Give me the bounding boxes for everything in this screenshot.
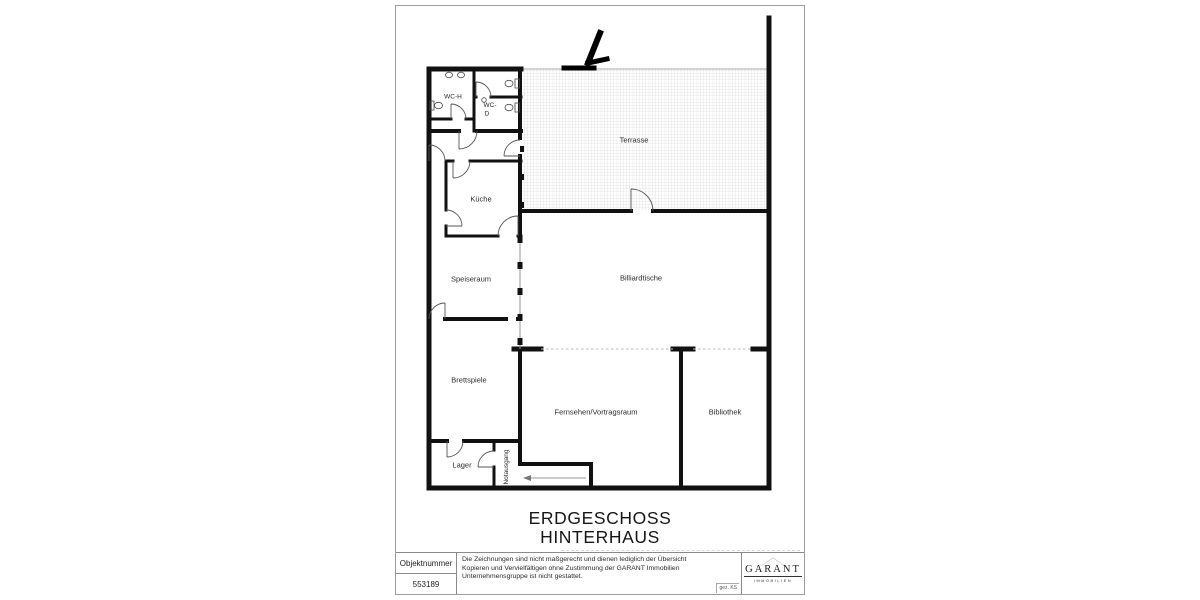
room-label-lager: Lager [452, 461, 472, 470]
disclaimer-line1: Die Zeichnungen sind nicht maßgerecht un… [462, 556, 736, 565]
drawn-by-note: gez. KS [716, 583, 739, 593]
room-label-bibliothek: Bibliothek [709, 408, 742, 417]
disclaimer-line3: Unternehmensgruppe ist nicht gestattet. [462, 573, 736, 582]
object-number-label: Objektnummer [396, 553, 456, 574]
entrance-ramp [523, 475, 586, 481]
room-label-notausgang: Notausgang [503, 449, 510, 484]
room-label-fernsehen-vortragsraum: Fernsehen/Vortragsraum [555, 408, 638, 417]
title-block: Objektnummer 553189 Die Zeichnungen sind… [396, 552, 804, 594]
drawing-sheet: WC-H WC- D Küche Terrasse Speiseraum Bil… [395, 5, 805, 595]
room-label-wc-d-line1: WC- [484, 102, 497, 109]
room-label-terrasse: Terrasse [620, 136, 649, 145]
logo-text: GARANT [744, 564, 802, 577]
disclaimer-line2: Kopieren und Vervielfältigen ohne Zustim… [462, 565, 736, 574]
floorplan-drawing: WC-H WC- D Küche Terrasse Speiseraum Bil… [396, 6, 804, 594]
logo-subtext: IMMOBILIEN [754, 579, 792, 583]
room-label-speiseraum: Speiseraum [451, 275, 491, 284]
room-label-kueche: Küche [470, 195, 491, 204]
room-label-wc-d-line2: D [485, 111, 490, 118]
object-number-value: 553189 [396, 574, 456, 594]
arrow-left-icon [523, 475, 531, 481]
garant-logo: GARANT IMMOBILIEN [742, 553, 804, 594]
plan-title-line1: ERDGESCHOSS [396, 509, 804, 528]
room-label-billiardtische: Billiardtische [620, 274, 662, 283]
object-number-box: Objektnummer 553189 [396, 553, 457, 594]
faint-divider-line [561, 550, 800, 551]
sink-icon [458, 72, 465, 78]
plan-title-line2: HINTERHAUS [396, 528, 804, 547]
gate-symbol-icon [564, 33, 607, 68]
room-label-brettspiele: Brettspiele [451, 376, 486, 385]
plan-title: ERDGESCHOSS HINTERHAUS [396, 509, 804, 547]
sink-icon [446, 72, 453, 78]
room-label-wc-h: WC-H [444, 94, 462, 101]
disclaimer-box: Die Zeichnungen sind nicht maßgerecht un… [457, 553, 742, 594]
